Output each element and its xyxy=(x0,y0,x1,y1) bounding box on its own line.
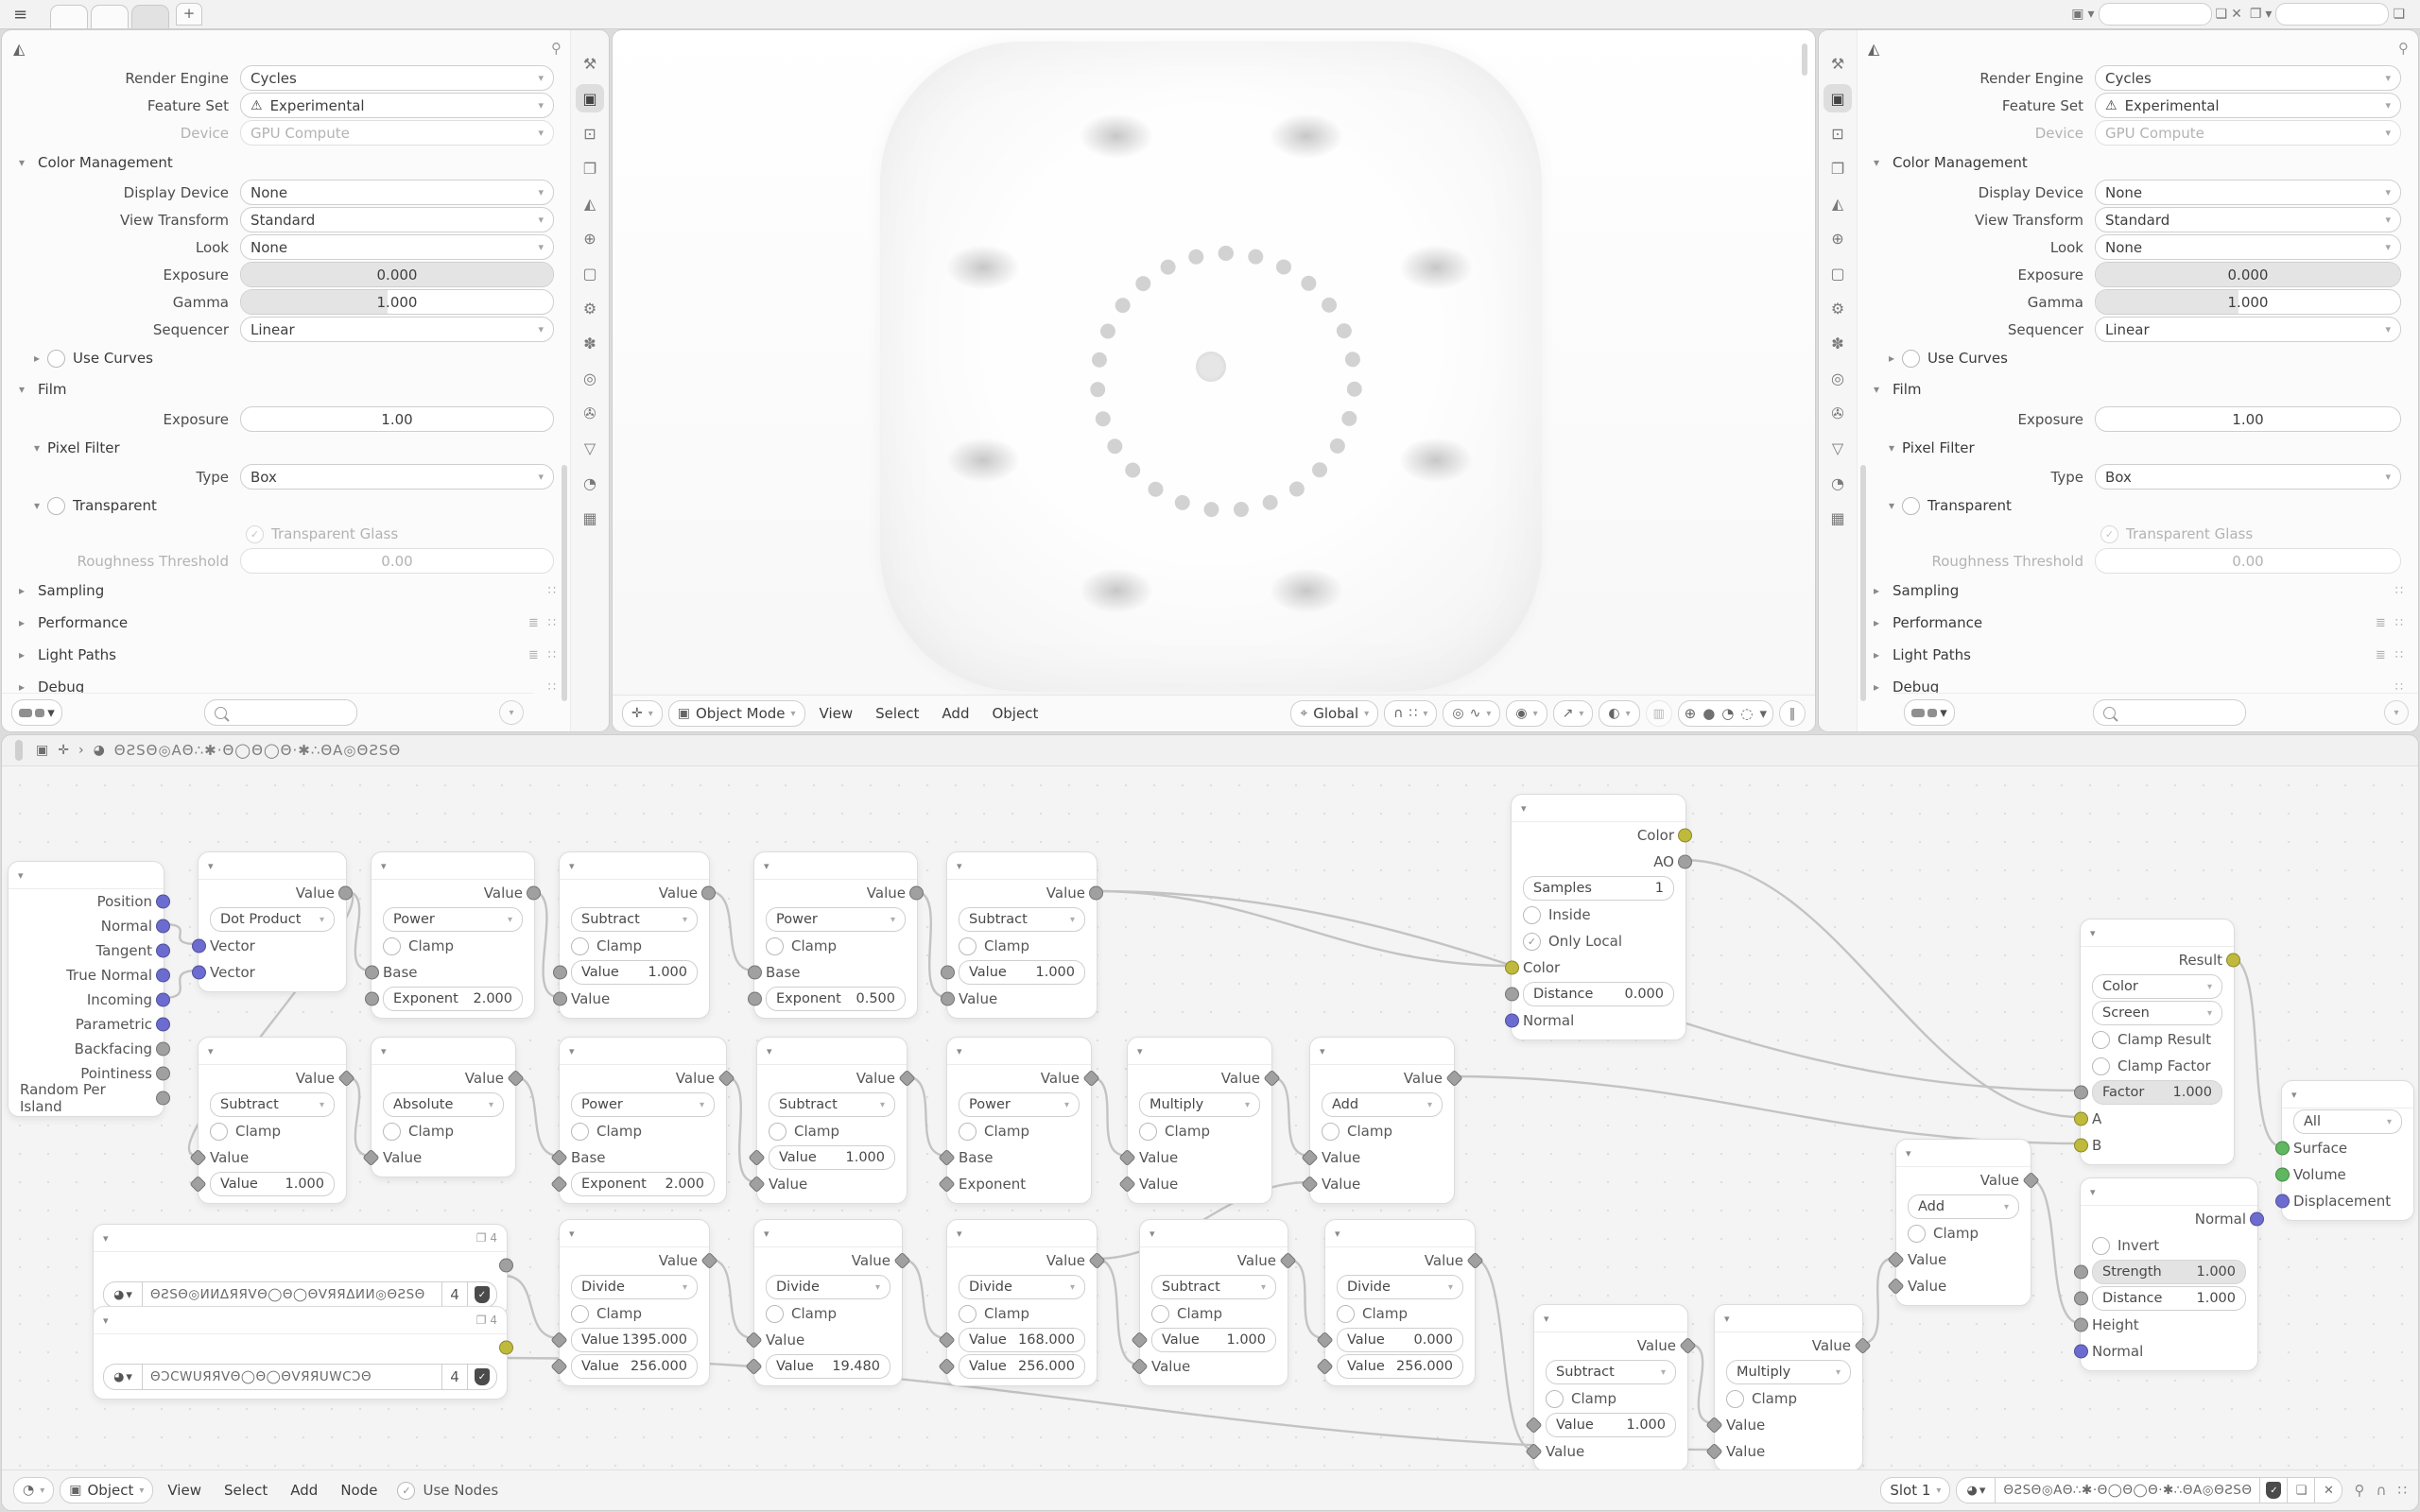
editor-options-icon[interactable]: ∷ xyxy=(2397,1482,2407,1499)
workspace-tab-1[interactable] xyxy=(50,5,88,28)
output-socket[interactable] xyxy=(156,1091,170,1106)
tab-world-icon[interactable]: ⊕ xyxy=(1824,224,1852,252)
value-field[interactable]: Value168.000 xyxy=(959,1328,1085,1352)
rendered-shading-icon[interactable]: ◌ xyxy=(1740,705,1753,722)
node-multiply-1[interactable]: ▾ValueMultiply▾ClampValueValue xyxy=(1127,1037,1272,1204)
input-socket[interactable] xyxy=(365,966,379,980)
exposure-field[interactable]: 1.00 xyxy=(2095,406,2401,432)
checkbox-clamp[interactable]: Clamp xyxy=(210,1123,281,1141)
roughness-threshold-field[interactable]: 0.00 xyxy=(2095,548,2401,574)
node-image-texture-2[interactable]: ▾❐ 4◕▾ΘƆCWUЯЯVΘ◯Θ◯ΘVЯЯUWCƆΘ4✓ xyxy=(93,1306,508,1400)
drag-dots-icon[interactable]: ∷ xyxy=(548,648,556,662)
new-material-button[interactable]: ❏ xyxy=(2288,1477,2315,1503)
input-socket[interactable] xyxy=(553,966,567,980)
tab-particles-icon[interactable]: ✽ xyxy=(1824,329,1852,357)
preset-list-icon[interactable]: ≣ xyxy=(528,616,539,630)
checkbox-clamp[interactable]: Clamp xyxy=(766,937,837,955)
output-socket[interactable] xyxy=(156,1067,170,1081)
output-socket[interactable] xyxy=(156,969,170,983)
tab-view-layer-icon[interactable]: ❐ xyxy=(576,154,604,182)
snap-magnet-icon[interactable]: ∩ xyxy=(2376,1482,2386,1499)
value-field[interactable]: Value256.000 xyxy=(1337,1354,1463,1379)
checkbox-clamp[interactable]: Clamp xyxy=(383,937,454,955)
tab-texture-icon[interactable]: ▦ xyxy=(576,504,604,532)
section-color-management[interactable]: ▾Color Management xyxy=(2,146,571,179)
type-select[interactable]: Box▾ xyxy=(2095,464,2401,490)
input-socket[interactable] xyxy=(365,992,379,1006)
checkbox-clamp[interactable]: Clamp xyxy=(1139,1123,1210,1141)
properties-editor-icon[interactable]: ◭ xyxy=(1868,40,1879,58)
tab-material-icon[interactable]: ◔ xyxy=(576,469,604,497)
menu-node[interactable]: Node xyxy=(332,1482,386,1499)
display-device-select[interactable]: None▾ xyxy=(240,180,554,205)
tab-output-icon[interactable]: ⊡ xyxy=(576,119,604,147)
node-subtract-6[interactable]: ▾ValueSubtract▾ClampValue1.000Value xyxy=(1533,1304,1688,1470)
section-performance[interactable]: ▸Performance≣∷ xyxy=(2,607,571,639)
select-multiply[interactable]: Multiply▾ xyxy=(1726,1360,1851,1384)
checkbox-clamp[interactable]: Clamp xyxy=(1151,1305,1222,1323)
filter-toggle-button[interactable]: ▾ xyxy=(1904,699,1955,726)
output-socket[interactable] xyxy=(156,1018,170,1032)
input-socket[interactable] xyxy=(748,966,762,980)
tab-render-icon[interactable]: ▣ xyxy=(1824,84,1852,112)
collapse-chevron-icon[interactable]: ▾ xyxy=(2090,927,2096,939)
material-name-field[interactable]: ΘƧSΘ◎AΘ∴✱·Θ◯Θ◯Θ·✱∴ΘA◎ΘƧSΘ xyxy=(1995,1477,2260,1503)
checkbox-inside[interactable]: Inside xyxy=(1523,906,1591,924)
select-add[interactable]: Add▾ xyxy=(1322,1092,1443,1117)
select-power[interactable]: Power▾ xyxy=(383,907,523,932)
collapse-chevron-icon[interactable]: ▾ xyxy=(1137,1045,1143,1057)
look-select[interactable]: None▾ xyxy=(2095,234,2401,260)
input-socket[interactable] xyxy=(2074,1292,2088,1306)
options-dropdown-button[interactable]: ▾ xyxy=(499,700,524,725)
checkbox-only-local[interactable]: Only Local xyxy=(1523,933,1622,951)
node-ambient-occlusion[interactable]: ▾ColorAOSamples1InsideOnly LocalColorDis… xyxy=(1511,794,1686,1040)
checkbox-invert[interactable]: Invert xyxy=(2092,1237,2159,1255)
value-field[interactable]: Value19.480 xyxy=(766,1354,890,1379)
select-divide[interactable]: Divide▾ xyxy=(766,1275,890,1299)
value-field[interactable]: Factor1.000 xyxy=(2092,1080,2222,1105)
slot-selector[interactable]: Slot 1 ▾ xyxy=(1880,1477,1950,1503)
subsection-transparent[interactable]: ▾Transparent xyxy=(2,490,571,521)
render-engine-select[interactable]: Cycles▾ xyxy=(2095,65,2401,91)
tab-view-layer-icon[interactable]: ❐ xyxy=(1824,154,1852,182)
image-users-count[interactable]: 4 xyxy=(442,1281,468,1308)
value-field[interactable]: Exponent0.500 xyxy=(766,987,906,1011)
collapse-chevron-icon[interactable]: ▾ xyxy=(2090,1186,2096,1198)
collapse-chevron-icon[interactable]: ▾ xyxy=(764,1228,769,1240)
unlink-scene-icon[interactable]: ✕ xyxy=(2231,7,2242,22)
node-subtract-5[interactable]: ▾ValueSubtract▾ClampValue1.000Value xyxy=(1139,1219,1288,1386)
checkbox-clamp[interactable]: Clamp xyxy=(1546,1390,1616,1408)
checkbox-clamp[interactable]: Clamp xyxy=(769,1123,839,1141)
select-power[interactable]: Power▾ xyxy=(959,1092,1080,1117)
tab-render-icon[interactable]: ▣ xyxy=(576,84,604,112)
value-field[interactable]: Value0.000 xyxy=(1337,1328,1463,1352)
tab-object-data-icon[interactable]: ▽ xyxy=(576,434,604,462)
node-mix-color[interactable]: ▾ResultColor▾Screen▾Clamp ResultClamp Fa… xyxy=(2080,919,2235,1165)
subsection-use-curves[interactable]: ▸Use Curves xyxy=(1857,343,2418,373)
feature-set-select[interactable]: ⚠Experimental▾ xyxy=(2095,93,2401,118)
solid-shading-icon[interactable]: ● xyxy=(1703,705,1715,722)
select-divide[interactable]: Divide▾ xyxy=(959,1275,1085,1299)
input-socket[interactable] xyxy=(192,939,206,954)
node-divide-1[interactable]: ▾ValueDivide▾ClampValue1395.000Value256.… xyxy=(559,1219,710,1386)
image-name-field[interactable]: ΘƆCWUЯЯVΘ◯Θ◯ΘVЯЯUWCƆΘ xyxy=(142,1364,442,1390)
node-power-4[interactable]: ▾ValuePower▾ClampBaseExponent xyxy=(946,1037,1092,1204)
exposure-slider[interactable]: 0.000 xyxy=(240,262,554,287)
subsection-use-curves[interactable]: ▸Use Curves xyxy=(2,343,571,373)
collapse-chevron-icon[interactable]: ▾ xyxy=(1149,1228,1155,1240)
chevron-down-icon[interactable]: ▾ xyxy=(2265,7,2272,22)
value-field[interactable]: Strength1.000 xyxy=(2092,1260,2246,1284)
input-socket[interactable] xyxy=(2275,1194,2290,1209)
subsection-pixel-filter[interactable]: ▾Pixel Filter xyxy=(2,433,571,463)
collapse-chevron-icon[interactable]: ▾ xyxy=(1521,802,1527,815)
tab-constraints-icon[interactable]: ✇ xyxy=(1824,399,1852,427)
collapse-chevron-icon[interactable]: ▾ xyxy=(381,860,387,872)
view-layer-name-field[interactable] xyxy=(2275,3,2389,26)
type-select[interactable]: Box▾ xyxy=(240,464,554,490)
view-transform-select[interactable]: Standard▾ xyxy=(240,207,554,232)
output-socket[interactable] xyxy=(156,993,170,1007)
checkbox[interactable] xyxy=(1902,350,1920,368)
collapse-chevron-icon[interactable]: ▾ xyxy=(957,1045,962,1057)
sequencer-select[interactable]: Linear▾ xyxy=(2095,317,2401,342)
collapse-chevron-icon[interactable]: ▾ xyxy=(1544,1313,1549,1325)
filter-toggle-button[interactable]: ▾ xyxy=(11,699,62,726)
drag-dots-icon[interactable]: ∷ xyxy=(548,584,556,598)
checkbox-clamp[interactable]: Clamp xyxy=(383,1123,454,1141)
tab-particles-icon[interactable]: ✽ xyxy=(576,329,604,357)
section-performance[interactable]: ▸Performance≣∷ xyxy=(1857,607,2418,639)
properties-scrollbar[interactable] xyxy=(1860,465,1866,701)
select-divide[interactable]: Divide▾ xyxy=(1337,1275,1463,1299)
properties-editor-icon[interactable]: ◭ xyxy=(13,40,25,58)
output-socket[interactable] xyxy=(499,1341,513,1355)
select-divide[interactable]: Divide▾ xyxy=(571,1275,698,1299)
value-field[interactable]: Value256.000 xyxy=(571,1354,698,1379)
checkbox[interactable] xyxy=(2100,525,2118,543)
value-field[interactable]: Value1.000 xyxy=(1546,1413,1676,1437)
collapse-chevron-icon[interactable]: ▾ xyxy=(569,1045,575,1057)
node-power-3[interactable]: ▾ValuePower▾ClampBaseExponent2.000 xyxy=(559,1037,727,1204)
collapse-chevron-icon[interactable]: ▾ xyxy=(569,1228,575,1240)
tab-material-icon[interactable]: ◔ xyxy=(1824,469,1852,497)
input-socket[interactable] xyxy=(941,966,955,980)
section-sampling[interactable]: ▸Sampling∷ xyxy=(2,575,571,607)
collapse-chevron-icon[interactable]: ▾ xyxy=(208,860,214,872)
node-geometry[interactable]: ▾PositionNormalTangentTrue NormalIncomin… xyxy=(8,861,164,1117)
input-socket[interactable] xyxy=(2074,1345,2088,1359)
input-socket[interactable] xyxy=(1505,1014,1519,1028)
use-nodes-checkbox[interactable] xyxy=(397,1482,415,1500)
select-add[interactable]: Add▾ xyxy=(1908,1194,2019,1219)
drag-dots-icon[interactable]: ∷ xyxy=(2395,648,2403,662)
checkbox-clamp[interactable]: Clamp xyxy=(1337,1305,1408,1323)
value-field[interactable]: Value1.000 xyxy=(1151,1328,1276,1352)
unlink-material-button[interactable]: ✕ xyxy=(2315,1477,2342,1503)
collapse-chevron-icon[interactable]: ▾ xyxy=(1906,1147,1911,1160)
workspace-tab-3[interactable] xyxy=(131,5,169,28)
look-select[interactable]: None▾ xyxy=(240,234,554,260)
output-socket[interactable] xyxy=(2250,1212,2264,1227)
section-light-paths[interactable]: ▸Light Paths≣∷ xyxy=(2,639,571,671)
fake-user-toggle[interactable]: ✓ xyxy=(468,1281,497,1308)
output-socket[interactable] xyxy=(909,886,924,901)
node-material-output[interactable]: ▾All▾SurfaceVolumeDisplacement xyxy=(2281,1080,2414,1221)
drag-dots-icon[interactable]: ∷ xyxy=(2395,584,2403,598)
output-socket[interactable] xyxy=(156,1042,170,1057)
pin-icon[interactable]: ⚲ xyxy=(2398,40,2409,57)
select-screen[interactable]: Screen▾ xyxy=(2092,1001,2222,1025)
node-image-texture-1[interactable]: ▾❐ 4◕▾ΘƧSΘ◎ИИΔЯЯVΘ◯Θ◯ΘVЯЯΔИИ◎ΘƧSΘ4✓ xyxy=(93,1224,508,1317)
scene-icon[interactable]: ▣ xyxy=(2071,7,2083,22)
display-device-select[interactable]: None▾ xyxy=(2095,180,2401,205)
output-socket[interactable] xyxy=(2226,954,2240,968)
node-divide-2[interactable]: ▾ValueDivide▾ClampValueValue19.480 xyxy=(753,1219,903,1386)
tab-physics-icon[interactable]: ◎ xyxy=(576,364,604,392)
tab-tool-icon[interactable]: ⚒ xyxy=(576,49,604,77)
drag-dots-icon[interactable]: ∷ xyxy=(548,680,556,695)
input-socket[interactable] xyxy=(2275,1168,2290,1182)
tab-object-data-icon[interactable]: ▽ xyxy=(1824,434,1852,462)
select-all[interactable]: All▾ xyxy=(2293,1109,2402,1134)
options-dropdown-button[interactable]: ▾ xyxy=(2384,700,2409,725)
input-socket[interactable] xyxy=(1505,961,1519,975)
input-socket[interactable] xyxy=(2074,1265,2088,1280)
checkbox-clamp[interactable]: Clamp xyxy=(959,1305,1029,1323)
output-socket[interactable] xyxy=(499,1259,513,1273)
collapse-chevron-icon[interactable]: ▾ xyxy=(103,1232,109,1245)
editor-type-button[interactable]: ✛ ▾ xyxy=(622,700,663,727)
view-layer-icon[interactable]: ❐ xyxy=(2250,7,2262,22)
tab-tool-icon[interactable]: ⚒ xyxy=(1824,49,1852,77)
workspace-tab-2[interactable] xyxy=(91,5,129,28)
tab-modifiers-icon[interactable]: ⚙ xyxy=(1824,294,1852,322)
properties-scrollbar[interactable] xyxy=(562,465,567,701)
menu-select[interactable]: Select xyxy=(216,1482,276,1499)
tab-output-icon[interactable]: ⊡ xyxy=(1824,119,1852,147)
properties-search-input[interactable] xyxy=(204,699,357,726)
tab-constraints-icon[interactable]: ✇ xyxy=(576,399,604,427)
browse-material-button[interactable]: ◕ ▾ xyxy=(1956,1477,1995,1503)
collapse-chevron-icon[interactable]: ▾ xyxy=(1724,1313,1730,1325)
sequencer-select[interactable]: Linear▾ xyxy=(240,317,554,342)
pause-button[interactable]: ‖ xyxy=(1779,700,1806,727)
gizmos-toggle[interactable]: ↗ ▾ xyxy=(1553,700,1594,727)
select-subtract[interactable]: Subtract▾ xyxy=(210,1092,335,1117)
tab-texture-icon[interactable]: ▦ xyxy=(1824,504,1852,532)
section-sampling[interactable]: ▸Sampling∷ xyxy=(1857,575,2418,607)
pin-icon[interactable]: ⚲ xyxy=(551,40,562,57)
checkbox-clamp[interactable]: Clamp xyxy=(1726,1390,1797,1408)
fake-user-toggle[interactable]: ✓ xyxy=(2260,1477,2288,1503)
feature-set-select[interactable]: ⚠Experimental▾ xyxy=(240,93,554,118)
menu-add[interactable]: Add xyxy=(282,1482,326,1499)
output-socket[interactable] xyxy=(156,944,170,958)
fake-user-toggle[interactable]: ✓ xyxy=(468,1364,497,1390)
device-select[interactable]: GPU Compute▾ xyxy=(240,120,554,146)
preset-list-icon[interactable]: ≣ xyxy=(2376,648,2386,662)
menu-object[interactable]: Object xyxy=(983,705,1046,722)
value-field[interactable]: Value256.000 xyxy=(959,1354,1085,1379)
image-name-field[interactable]: ΘƧSΘ◎ИИΔЯЯVΘ◯Θ◯ΘVЯЯΔИИ◎ΘƧSΘ xyxy=(142,1281,442,1308)
value-field[interactable]: Value1.000 xyxy=(959,960,1085,985)
select-subtract[interactable]: Subtract▾ xyxy=(1151,1275,1276,1299)
value-field[interactable]: Exponent2.000 xyxy=(383,987,523,1011)
checkbox-clamp[interactable]: Clamp xyxy=(571,1123,642,1141)
collapse-chevron-icon[interactable]: ▾ xyxy=(1335,1228,1340,1240)
collapse-chevron-icon[interactable]: ▾ xyxy=(767,1045,772,1057)
select-power[interactable]: Power▾ xyxy=(766,907,906,932)
editor-type-button[interactable]: ◔ ▾ xyxy=(13,1477,54,1503)
checkbox-clamp[interactable]: Clamp xyxy=(1908,1225,1979,1243)
collapse-chevron-icon[interactable]: ▾ xyxy=(208,1045,214,1057)
node-subtract-1[interactable]: ▾ValueSubtract▾ClampValue1.000Value xyxy=(559,851,710,1019)
viewport-scrollbar[interactable] xyxy=(1802,43,1807,76)
input-socket[interactable] xyxy=(941,992,955,1006)
browse-image-button[interactable]: ◕▾ xyxy=(103,1364,142,1390)
device-select[interactable]: GPU Compute▾ xyxy=(2095,120,2401,146)
node-canvas[interactable]: ▾PositionNormalTangentTrue NormalIncomin… xyxy=(2,765,2418,1470)
value-field[interactable]: Distance1.000 xyxy=(2092,1286,2246,1311)
transform-orientation[interactable]: ⌖ Global ▾ xyxy=(1290,700,1378,727)
output-socket[interactable] xyxy=(156,919,170,934)
render-engine-select[interactable]: Cycles▾ xyxy=(240,65,554,91)
output-socket[interactable] xyxy=(156,895,170,909)
node-absolute[interactable]: ▾ValueAbsolute▾ClampValue xyxy=(371,1037,516,1177)
output-socket[interactable] xyxy=(527,886,541,901)
menu-view[interactable]: View xyxy=(159,1482,210,1499)
output-socket[interactable] xyxy=(1678,855,1692,869)
select-color[interactable]: Color▾ xyxy=(2092,974,2222,999)
select-dot-product[interactable]: Dot Product▾ xyxy=(210,907,335,932)
input-socket[interactable] xyxy=(2074,1318,2088,1332)
checkbox-clamp[interactable]: Clamp xyxy=(959,1123,1029,1141)
roughness-threshold-field[interactable]: 0.00 xyxy=(240,548,554,574)
overlays-toggle[interactable]: ◐ ▾ xyxy=(1599,700,1639,727)
menu-add[interactable]: Add xyxy=(933,705,977,722)
input-socket[interactable] xyxy=(748,992,762,1006)
snap-toggle[interactable]: ∩ ∷ ▾ xyxy=(1384,700,1437,727)
output-socket[interactable] xyxy=(701,886,716,901)
gamma-slider[interactable]: 1.000 xyxy=(240,289,554,315)
drag-dots-icon[interactable]: ∷ xyxy=(548,616,556,630)
preset-list-icon[interactable]: ≣ xyxy=(2376,616,2386,630)
new-tab-button[interactable]: + xyxy=(176,3,202,26)
node-subtract-4[interactable]: ▾ValueSubtract▾ClampValue1.000Value xyxy=(756,1037,907,1204)
select-absolute[interactable]: Absolute▾ xyxy=(383,1092,504,1117)
drag-dots-icon[interactable]: ∷ xyxy=(2395,616,2403,630)
tab-object-icon[interactable]: ▢ xyxy=(1824,259,1852,287)
value-field[interactable]: Value1.000 xyxy=(769,1145,895,1170)
value-field[interactable]: Value1.000 xyxy=(210,1172,335,1196)
properties-search-input[interactable] xyxy=(2093,699,2246,726)
checkbox[interactable] xyxy=(1902,497,1920,515)
use-nodes-toggle[interactable]: Use Nodes xyxy=(397,1482,498,1500)
collapse-chevron-icon[interactable]: ▾ xyxy=(1320,1045,1325,1057)
node-power-2[interactable]: ▾ValuePower▾ClampBaseExponent0.500 xyxy=(753,851,918,1019)
checkbox-clamp[interactable]: Clamp xyxy=(571,1305,642,1323)
wireframe-shading-icon[interactable]: ⊕ xyxy=(1685,705,1697,722)
checkbox[interactable] xyxy=(47,497,65,515)
pin-icon[interactable]: ⚲ xyxy=(2354,1482,2364,1499)
select-multiply[interactable]: Multiply▾ xyxy=(1139,1092,1260,1117)
tab-scene-icon[interactable]: ◭ xyxy=(1824,189,1852,217)
select-subtract[interactable]: Subtract▾ xyxy=(769,1092,895,1117)
browse-image-button[interactable]: ◕▾ xyxy=(103,1281,142,1308)
value-field[interactable]: Samples1 xyxy=(1523,876,1674,901)
tab-object-icon[interactable]: ▢ xyxy=(576,259,604,287)
xray-toggle[interactable]: ▥ xyxy=(1646,700,1672,727)
image-users-count[interactable]: 4 xyxy=(442,1364,468,1390)
select-power[interactable]: Power▾ xyxy=(571,1092,715,1117)
collapse-chevron-icon[interactable]: ▾ xyxy=(18,869,24,882)
collapse-chevron-icon[interactable]: ▾ xyxy=(103,1314,109,1327)
select-subtract[interactable]: Subtract▾ xyxy=(1546,1360,1676,1384)
value-field[interactable]: Value1.000 xyxy=(571,960,698,985)
editor-type-icon[interactable]: ▣ xyxy=(36,743,48,758)
section-light-paths[interactable]: ▸Light Paths≣∷ xyxy=(1857,639,2418,671)
node-power-1[interactable]: ▾ValuePower▾ClampBaseExponent2.000 xyxy=(371,851,535,1019)
tab-world-icon[interactable]: ⊕ xyxy=(576,224,604,252)
menu-view[interactable]: View xyxy=(811,705,862,722)
input-socket[interactable] xyxy=(2275,1142,2290,1156)
checkbox-clamp[interactable]: Clamp xyxy=(766,1305,837,1323)
show-gizmo-toggle[interactable]: ◉ ▾ xyxy=(1506,700,1547,727)
checkbox-clamp-result[interactable]: Clamp Result xyxy=(2092,1031,2211,1049)
collapse-chevron-icon[interactable]: ▾ xyxy=(957,860,962,872)
node-subtract-3[interactable]: ▾ValueSubtract▾ClampValueValue1.000 xyxy=(198,1037,347,1204)
subsection-transparent[interactable]: ▾Transparent xyxy=(1857,490,2418,521)
section-color-management[interactable]: ▾Color Management xyxy=(1857,146,2418,179)
node-divide-3[interactable]: ▾ValueDivide▾ClampValue168.000Value256.0… xyxy=(946,1219,1098,1386)
checkbox[interactable] xyxy=(246,525,264,543)
checkbox-clamp[interactable]: Clamp xyxy=(1322,1123,1392,1141)
tab-modifiers-icon[interactable]: ⚙ xyxy=(576,294,604,322)
checkbox-clamp[interactable]: Clamp xyxy=(959,937,1029,955)
value-field[interactable]: Exponent2.000 xyxy=(571,1172,715,1196)
collapse-chevron-icon[interactable]: ▾ xyxy=(957,1228,962,1240)
subsection-pixel-filter[interactable]: ▾Pixel Filter xyxy=(1857,433,2418,463)
value-field[interactable]: Value1395.000 xyxy=(571,1328,698,1352)
value-field[interactable]: Distance0.000 xyxy=(1523,982,1674,1006)
shader-type-selector[interactable]: ▣ Object ▾ xyxy=(60,1477,153,1503)
checkbox-clamp-factor[interactable]: Clamp Factor xyxy=(2092,1057,2211,1075)
input-socket[interactable] xyxy=(192,966,206,980)
hamburger-menu-icon[interactable]: ≡ xyxy=(13,5,27,25)
node-divide-4[interactable]: ▾ValueDivide▾ClampValue0.000Value256.000 xyxy=(1324,1219,1476,1386)
collapse-chevron-icon[interactable]: ▾ xyxy=(764,860,769,872)
select-subtract[interactable]: Subtract▾ xyxy=(959,907,1085,932)
node-multiply-2[interactable]: ▾ValueMultiply▾ClampValueValue xyxy=(1714,1304,1863,1470)
section-film[interactable]: ▾Film xyxy=(1857,373,2418,405)
input-socket[interactable] xyxy=(2074,1139,2088,1153)
gamma-slider[interactable]: 1.000 xyxy=(2095,289,2401,315)
input-socket[interactable] xyxy=(553,992,567,1006)
select-subtract[interactable]: Subtract▾ xyxy=(571,907,698,932)
view-transform-select[interactable]: Standard▾ xyxy=(2095,207,2401,232)
preset-list-icon[interactable]: ≣ xyxy=(528,648,539,662)
output-socket[interactable] xyxy=(338,886,353,901)
node-subtract-2[interactable]: ▾ValueSubtract▾ClampValue1.000Value xyxy=(946,851,1098,1019)
collapse-chevron-icon[interactable]: ▾ xyxy=(381,1045,387,1057)
chevron-down-icon[interactable]: ▾ xyxy=(2088,7,2095,22)
section-film[interactable]: ▾Film xyxy=(2,373,571,405)
node-dot-product[interactable]: ▾ValueDot Product▾VectorVector xyxy=(198,851,347,992)
menu-select[interactable]: Select xyxy=(867,705,927,722)
